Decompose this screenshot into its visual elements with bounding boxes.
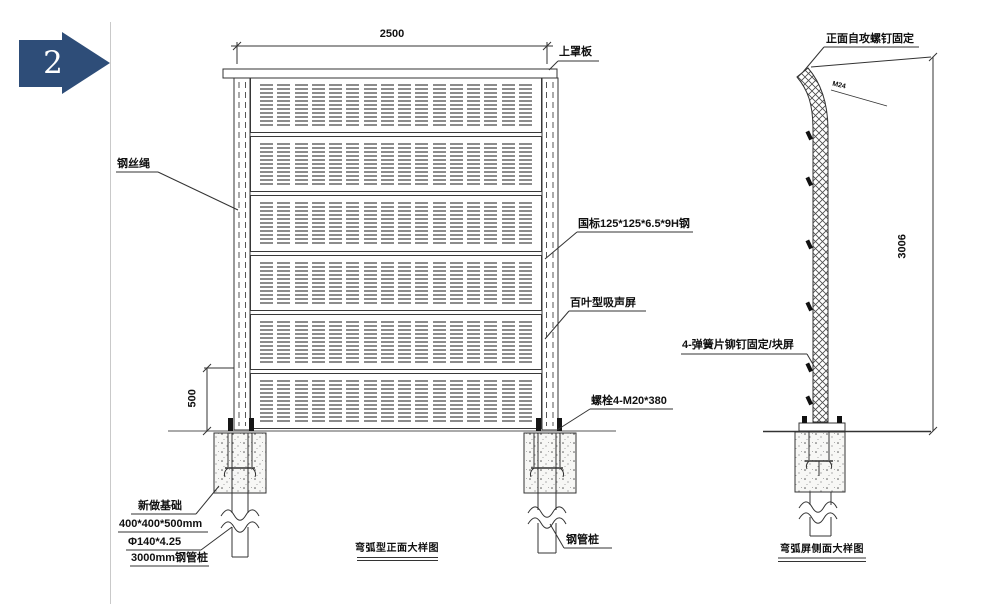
louver-slot-column (346, 380, 359, 422)
louver-slot-column (312, 321, 325, 363)
label-anchor-bolts: 螺栓4-M20*380 (591, 395, 667, 408)
louver-panel-row (250, 136, 542, 192)
louver-slot-column (433, 380, 446, 422)
louver-slot-column (398, 321, 411, 363)
louver-panel-row (250, 314, 542, 370)
louver-slot-column (484, 321, 497, 363)
louver-slot-column (312, 202, 325, 244)
louver-slot-column (450, 380, 463, 422)
louver-panel-row (250, 195, 542, 251)
louver-slot-column (484, 380, 497, 422)
louver-slot-column (381, 202, 394, 244)
louver-slot-column (450, 262, 463, 304)
louver-slot-column (415, 262, 428, 304)
louver-slot-column (381, 84, 394, 126)
louver-slot-column (381, 262, 394, 304)
louver-slot-column (433, 143, 446, 185)
label-h-steel-spec: 国标125*125*6.5*9H钢 (578, 218, 690, 231)
label-self-tapping-screw: 正面自攻螺钉固定 (826, 33, 914, 46)
louver-slot-column (484, 143, 497, 185)
louver-slot-column (277, 84, 290, 126)
louver-slot-column (277, 321, 290, 363)
side-view-caption: 弯弧屏侧面大样图 (776, 544, 868, 556)
label-pipe-spec: Φ140*4.25 (128, 536, 181, 549)
louver-slot-column (467, 202, 480, 244)
label-bolt-note: M24 (831, 80, 846, 91)
louver-slot-column (260, 84, 273, 126)
louver-slot-column (450, 143, 463, 185)
louver-slot-column (364, 202, 377, 244)
louver-slot-column (415, 143, 428, 185)
louver-slot-column (467, 380, 480, 422)
louver-slot-column (450, 84, 463, 126)
louver-slot-column (295, 143, 308, 185)
louver-slot-column (346, 202, 359, 244)
label-foundation-size: 400*400*500mm (119, 518, 202, 531)
louver-slot-column (415, 321, 428, 363)
louver-slot-column (398, 143, 411, 185)
louver-slot-column (329, 143, 342, 185)
louver-slot-column (502, 380, 515, 422)
louver-slot-column (519, 143, 532, 185)
louver-slot-column (260, 321, 273, 363)
louver-slot-column (381, 143, 394, 185)
louver-slot-column (295, 380, 308, 422)
louver-slot-column (364, 262, 377, 304)
louver-slot-column (381, 321, 394, 363)
louver-slot-column (519, 262, 532, 304)
label-pipe-length: 3000mm钢管桩 (131, 552, 208, 565)
louver-slot-column (502, 321, 515, 363)
label-new-foundation: 新做基础 (138, 500, 182, 513)
louver-slot-column (329, 262, 342, 304)
louver-slot-column (502, 262, 515, 304)
dim-height-500: 500 (187, 383, 200, 413)
louver-slot-column (364, 380, 377, 422)
louver-slot-column (433, 84, 446, 126)
louver-slot-column (295, 202, 308, 244)
louver-panel-row (250, 255, 542, 311)
louver-slot-column (364, 143, 377, 185)
side-elevation-lines (681, 47, 937, 562)
louver-slot-column (260, 202, 273, 244)
louver-slot-column (450, 321, 463, 363)
louver-panel-row (250, 373, 542, 429)
louver-slot-column (398, 202, 411, 244)
step-number: 2 (40, 44, 66, 82)
louver-slot-column (346, 84, 359, 126)
louver-slot-column (502, 202, 515, 244)
louver-slot-column (312, 262, 325, 304)
label-steel-wire-rope: 钢丝绳 (117, 158, 150, 171)
louver-slot-column (260, 262, 273, 304)
louver-slot-column (450, 202, 463, 244)
louver-slot-column (277, 202, 290, 244)
louver-slot-column (484, 202, 497, 244)
louver-slot-column (329, 321, 342, 363)
dim-height-3006: 3006 (897, 226, 910, 266)
louver-slot-column (312, 380, 325, 422)
louver-slot-column (398, 262, 411, 304)
louver-slot-column (502, 143, 515, 185)
louver-slot-column (415, 202, 428, 244)
drawing-sheet: 2 2500 上罩板 钢丝绳 国标125*125*6.5*9H钢 百叶型吸声屏 … (0, 0, 1000, 609)
louver-slot-column (519, 202, 532, 244)
louver-slot-column (295, 84, 308, 126)
louver-slot-column (364, 84, 377, 126)
louver-slot-column (364, 321, 377, 363)
label-top-cover-plate: 上罩板 (559, 46, 592, 59)
dim-width-2500: 2500 (362, 28, 422, 41)
louver-slot-column (295, 262, 308, 304)
louver-slot-column (398, 84, 411, 126)
louver-slot-column (277, 143, 290, 185)
louver-slot-column (260, 143, 273, 185)
label-spring-clip: 4-弹簧片铆钉固定/块屏 (682, 339, 794, 352)
louver-slot-column (329, 84, 342, 126)
front-view-caption: 弯弧型正面大样图 (352, 543, 442, 555)
louver-slot-column (467, 321, 480, 363)
louver-slot-column (484, 84, 497, 126)
louver-slot-column (277, 262, 290, 304)
louver-panel-row (250, 77, 542, 133)
louver-slot-column (433, 202, 446, 244)
louver-slot-column (346, 262, 359, 304)
louver-slot-column (415, 84, 428, 126)
louver-slot-column (329, 202, 342, 244)
louver-slot-column (381, 380, 394, 422)
louver-slot-column (519, 84, 532, 126)
louver-slot-column (484, 262, 497, 304)
louver-slot-column (433, 321, 446, 363)
louver-panel-grid (250, 77, 542, 429)
louver-slot-column (295, 321, 308, 363)
louver-slot-column (519, 380, 532, 422)
louver-slot-column (260, 380, 273, 422)
louver-slot-column (502, 84, 515, 126)
louver-slot-column (398, 380, 411, 422)
louver-slot-column (433, 262, 446, 304)
louver-slot-column (467, 262, 480, 304)
louver-slot-column (415, 380, 428, 422)
louver-slot-column (329, 380, 342, 422)
louver-slot-column (519, 321, 532, 363)
label-steel-pipe-pile: 钢管桩 (566, 534, 599, 547)
louver-slot-column (346, 321, 359, 363)
label-louver-screen: 百叶型吸声屏 (570, 297, 636, 310)
louver-slot-column (312, 84, 325, 126)
louver-slot-column (346, 143, 359, 185)
louver-slot-column (277, 380, 290, 422)
louver-slot-column (467, 143, 480, 185)
louver-slot-column (467, 84, 480, 126)
louver-slot-column (312, 143, 325, 185)
